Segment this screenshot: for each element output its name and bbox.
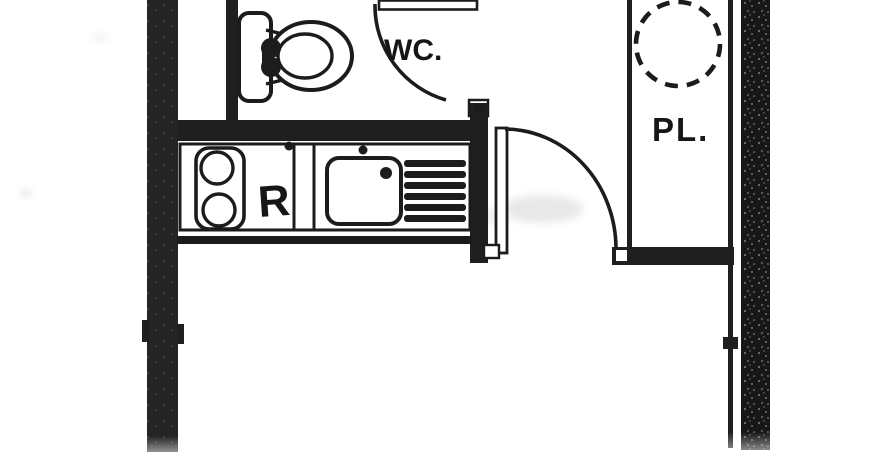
toilet-hinge-left xyxy=(261,38,281,58)
wall-left-tick-a xyxy=(142,320,149,342)
sink-faucet-dot xyxy=(380,167,392,179)
wall-left-outer xyxy=(147,0,178,452)
counter-front-edge xyxy=(177,236,474,244)
wc-room-label: WC. xyxy=(384,34,442,67)
sink-top-dot xyxy=(359,146,368,155)
floor-plan-svg: WC. PL. R xyxy=(0,0,872,460)
wc-door-leaf xyxy=(379,1,477,10)
wall-wc-left xyxy=(226,0,238,126)
stove-two-burners xyxy=(196,148,244,229)
entry-door-hinge-block xyxy=(484,245,499,258)
wall-left-tick-b xyxy=(177,324,184,344)
counter-top-dot xyxy=(285,142,294,151)
stove-burner-bottom xyxy=(203,194,235,226)
entry-door-leaf xyxy=(496,128,507,253)
floor-plan-scan: WC. PL. R xyxy=(0,0,872,460)
wall-right-tick xyxy=(723,337,738,349)
wall-kitchen-top xyxy=(177,120,470,141)
toilet-hinge-right xyxy=(261,57,281,77)
sink-basin xyxy=(327,158,401,224)
wall-right-inner-line xyxy=(728,0,733,448)
toilet-bowl-inner xyxy=(278,34,332,78)
scan-fade-left xyxy=(140,436,184,460)
wall-closet-bottom-notch xyxy=(616,250,627,261)
wall-right-outer xyxy=(741,0,770,450)
stove-burner-top xyxy=(201,152,233,184)
scan-fade-right xyxy=(718,432,774,460)
kitchen-counter xyxy=(177,142,474,245)
wall-closet-bottom xyxy=(612,247,734,265)
stove-label: R xyxy=(256,176,291,227)
closet-label: PL. xyxy=(652,111,709,148)
wall-closet-left xyxy=(627,0,632,249)
